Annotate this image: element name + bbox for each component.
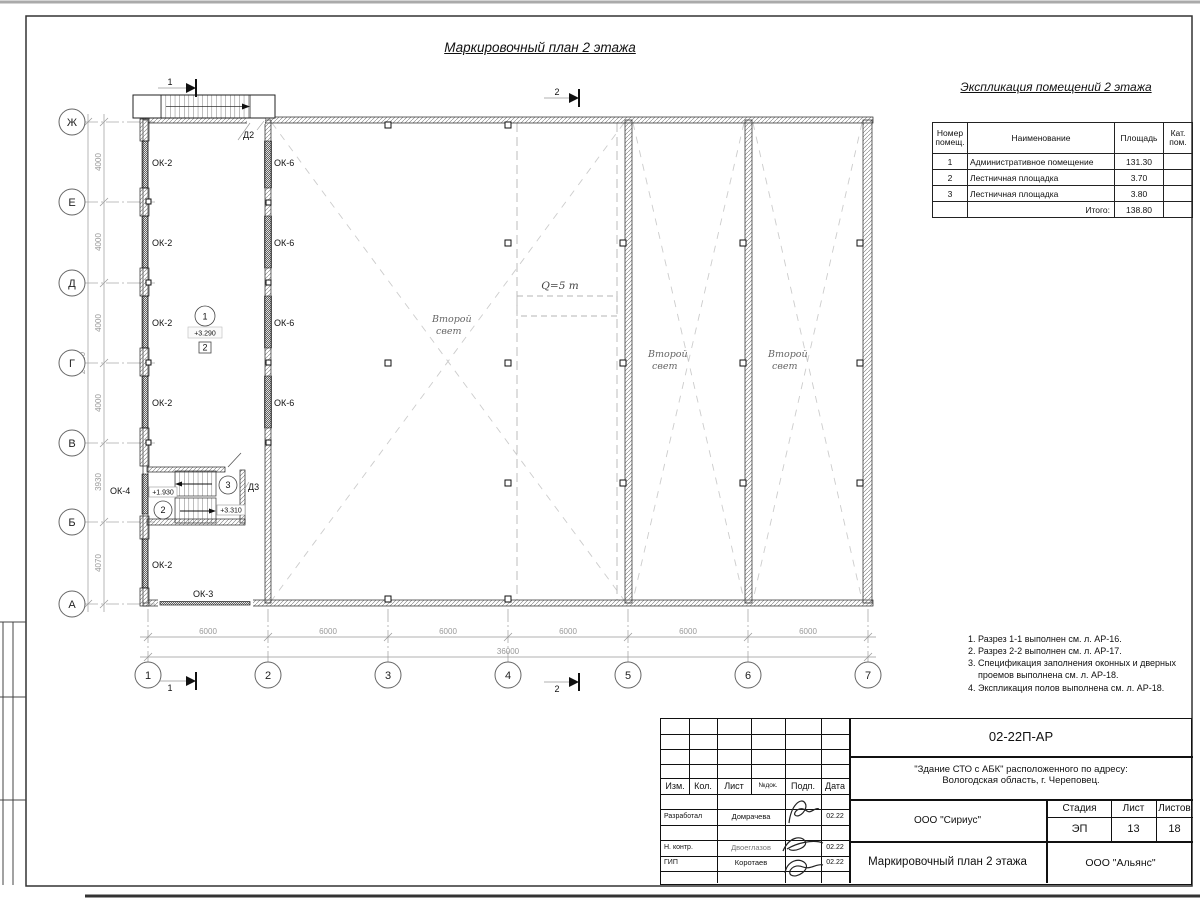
explication-title: Экспликация помещений 2 этажа [930, 80, 1182, 94]
axis-row-label: Б [68, 517, 75, 529]
dim-6000: 6000 [439, 627, 457, 636]
table-total-row: Итого: 138.80 [933, 202, 1193, 218]
axis-col-label: 5 [625, 670, 631, 682]
room-1-elevation: +3.290 [194, 331, 216, 338]
note-line: 2. Разрез 2-2 выполнен см. л. АР-17. [968, 645, 1198, 657]
room-1-number: 1 [202, 312, 207, 322]
tb-company: ООО "Альянс" [1048, 843, 1193, 883]
dim-6000: 6000 [319, 627, 337, 636]
tb-name-gip: Коротаев [717, 856, 785, 871]
second-light-text: свет [436, 326, 461, 337]
room-area: 3.70 [1115, 170, 1164, 186]
tb-project-line2: Вологодская область, г. Череповец. [849, 776, 1193, 790]
axis-col-label: 1 [145, 670, 151, 682]
section-1-label: 1 [167, 77, 172, 87]
axis-row-label: А [68, 599, 76, 611]
section-2-label: 2 [554, 87, 559, 97]
dim-4000: 4000 [94, 153, 103, 171]
dim-36000: 36000 [497, 647, 520, 656]
col-header-area: Площадь [1115, 123, 1164, 154]
room-area: 3.80 [1115, 186, 1164, 202]
second-light-text: Второй [431, 314, 472, 325]
room-num: 1 [933, 154, 968, 170]
window-label-ok4: ОК-4 [110, 486, 130, 496]
room-1-marker: 1 +3.290 2 [188, 306, 222, 353]
dim-3930: 3930 [94, 473, 103, 491]
stair-elevation-high: +3.310 [220, 508, 242, 515]
tb-doc-number: 02-22П-АР [849, 719, 1193, 756]
tb-sheet-value: 13 [1111, 817, 1156, 841]
tb-role-developer: Разработал [661, 809, 720, 825]
axis-circles-left: Ж Е Д Г В Б А [59, 109, 85, 617]
window-label-ok3: ОК-3 [193, 589, 213, 599]
axis-row-label: В [68, 438, 75, 450]
tb-date-developer: 02.22 [821, 809, 849, 825]
room-num: 2 [933, 170, 968, 186]
room-cat [1164, 154, 1193, 170]
tb-name-ncontrol: Двоеглазов [717, 840, 785, 856]
tb-header-ndok: №док. [751, 778, 785, 794]
window-label-ok6: ОК-6 [274, 238, 294, 248]
tb-sheets-value: 18 [1156, 817, 1193, 841]
side-stamp [0, 622, 26, 885]
tb-role-gip: ГИП [661, 856, 720, 871]
tb-sheets-label: Листов [1156, 801, 1193, 817]
explication-header-row: Номер помещ. Наименование Площадь Кат. п… [933, 123, 1193, 154]
tb-stage-label: Стадия [1048, 801, 1111, 817]
window-label-ok2: ОК-2 [152, 158, 172, 168]
room-cat [1164, 170, 1193, 186]
dim-4000: 4000 [94, 314, 103, 332]
dim-6000: 6000 [559, 627, 577, 636]
col-header-cat: Кат. пом. [1164, 123, 1193, 154]
axis-col-label: 4 [505, 670, 511, 682]
empty-cell [933, 202, 968, 218]
tb-header-data: Дата [821, 778, 849, 794]
dim-4000: 4000 [94, 394, 103, 412]
room-name: Административное помещение [968, 154, 1115, 170]
axis-row-label: Д [68, 278, 76, 290]
door-d2-label: Д2 [243, 130, 254, 140]
second-light-text: свет [772, 361, 797, 372]
axis-col-label: 2 [265, 670, 271, 682]
section-1-label: 1 [167, 683, 172, 693]
notes-block: 1. Разрез 1-1 выполнен см. л. АР-16. 2. … [968, 633, 1198, 694]
room-1-type-box: 2 [202, 343, 207, 353]
window-label-ok6: ОК-6 [274, 318, 294, 328]
second-light-text: свет [652, 361, 677, 372]
window-label-ok6: ОК-6 [274, 158, 294, 168]
room-name: Лестничная площадка [968, 186, 1115, 202]
dim-6000: 6000 [799, 627, 817, 636]
note-line: 1. Разрез 1-1 выполнен см. л. АР-16. [968, 633, 1198, 645]
crane-runway: Q=5 т [517, 123, 617, 600]
tb-header-list: Лист [717, 778, 751, 794]
section-mark-1-bottom: 1 [158, 672, 196, 693]
dim-6000: 6000 [679, 627, 697, 636]
tb-sheet-label: Лист [1111, 801, 1156, 817]
axis-row-label: Г [69, 358, 75, 370]
external-stair [133, 95, 275, 118]
col-header-name: Наименование [968, 123, 1115, 154]
window-label-ok2: ОК-2 [152, 238, 172, 248]
title-block: Изм. Кол. Лист №док. Подп. Дата Разработ… [660, 718, 1192, 885]
note-line: 3. Спецификация заполнения оконных и две… [968, 657, 1198, 681]
section-2-label: 2 [554, 684, 559, 694]
tb-project-line1: "Здание СТО с АБК" расположенного по адр… [849, 758, 1193, 776]
dim-4070: 4070 [94, 554, 103, 572]
door-d3-label: Д3 [248, 482, 259, 492]
table-row: 1 Административное помещение 131.30 [933, 154, 1193, 170]
table-row: 3 Лестничная площадка 3.80 [933, 186, 1193, 202]
axis-col-label: 6 [745, 670, 751, 682]
axis-col-label: 7 [865, 670, 871, 682]
total-value: 138.80 [1115, 202, 1164, 218]
signature-developer [783, 793, 823, 829]
axis-col-label: 3 [385, 670, 391, 682]
note-line: 4. Экспликация полов выполнена см. л. АР… [968, 682, 1198, 694]
column-marks [146, 122, 863, 602]
explication-table: Номер помещ. Наименование Площадь Кат. п… [932, 122, 1193, 218]
signature-gip [779, 833, 827, 885]
tb-stage-value: ЭП [1048, 817, 1111, 841]
tb-role-ncontrol: Н. контр. [661, 840, 720, 856]
room-area: 131.30 [1115, 154, 1164, 170]
axis-circles-bottom: 1 2 3 4 5 6 7 [135, 662, 881, 688]
window-label-ok2: ОК-2 [152, 318, 172, 328]
stairwell: +1.930 +3.310 2 3 Д3 [147, 453, 259, 525]
window-label-ok6: ОК-6 [274, 398, 294, 408]
second-light-text: Второй [767, 349, 808, 360]
tb-header-izm: Изм. [661, 778, 689, 794]
table-row: 2 Лестничная площадка 3.70 [933, 170, 1193, 186]
room-num: 3 [933, 186, 968, 202]
window-label-ok2: ОК-2 [152, 560, 172, 570]
dim-4000: 4000 [94, 233, 103, 251]
section-mark-2-top: 2 [544, 87, 579, 107]
tb-header-podp: Подп. [785, 778, 821, 794]
tb-drawing-title: Маркировочный план 2 этажа [849, 843, 1046, 883]
crane-capacity-label: Q=5 т [541, 280, 578, 292]
room-2-number: 2 [160, 505, 165, 515]
room-name: Лестничная площадка [968, 170, 1115, 186]
tb-org: ООО "Сириус" [849, 801, 1046, 841]
total-label: Итого: [968, 202, 1115, 218]
axis-row-label: Ж [67, 117, 77, 129]
tb-name-developer: Домрачева [717, 809, 785, 825]
section-mark-1-top: 1 [158, 77, 196, 97]
window-label-ok2: ОК-2 [152, 398, 172, 408]
room-cat [1164, 186, 1193, 202]
drawing-sheet: Q=5 т [0, 0, 1200, 900]
col-header-num: Номер помещ. [933, 123, 968, 154]
tb-header-kol: Кол. [689, 778, 717, 794]
section-mark-2-bottom: 2 [544, 673, 579, 694]
dim-6000: 6000 [199, 627, 217, 636]
empty-cell [1164, 202, 1193, 218]
axis-row-label: Е [68, 197, 75, 209]
page-title: Маркировочный план 2 этажа [380, 40, 700, 55]
second-light-text: Второй [647, 349, 688, 360]
room-3-number: 3 [225, 480, 230, 490]
stair-elevation-low: +1.930 [152, 490, 174, 497]
